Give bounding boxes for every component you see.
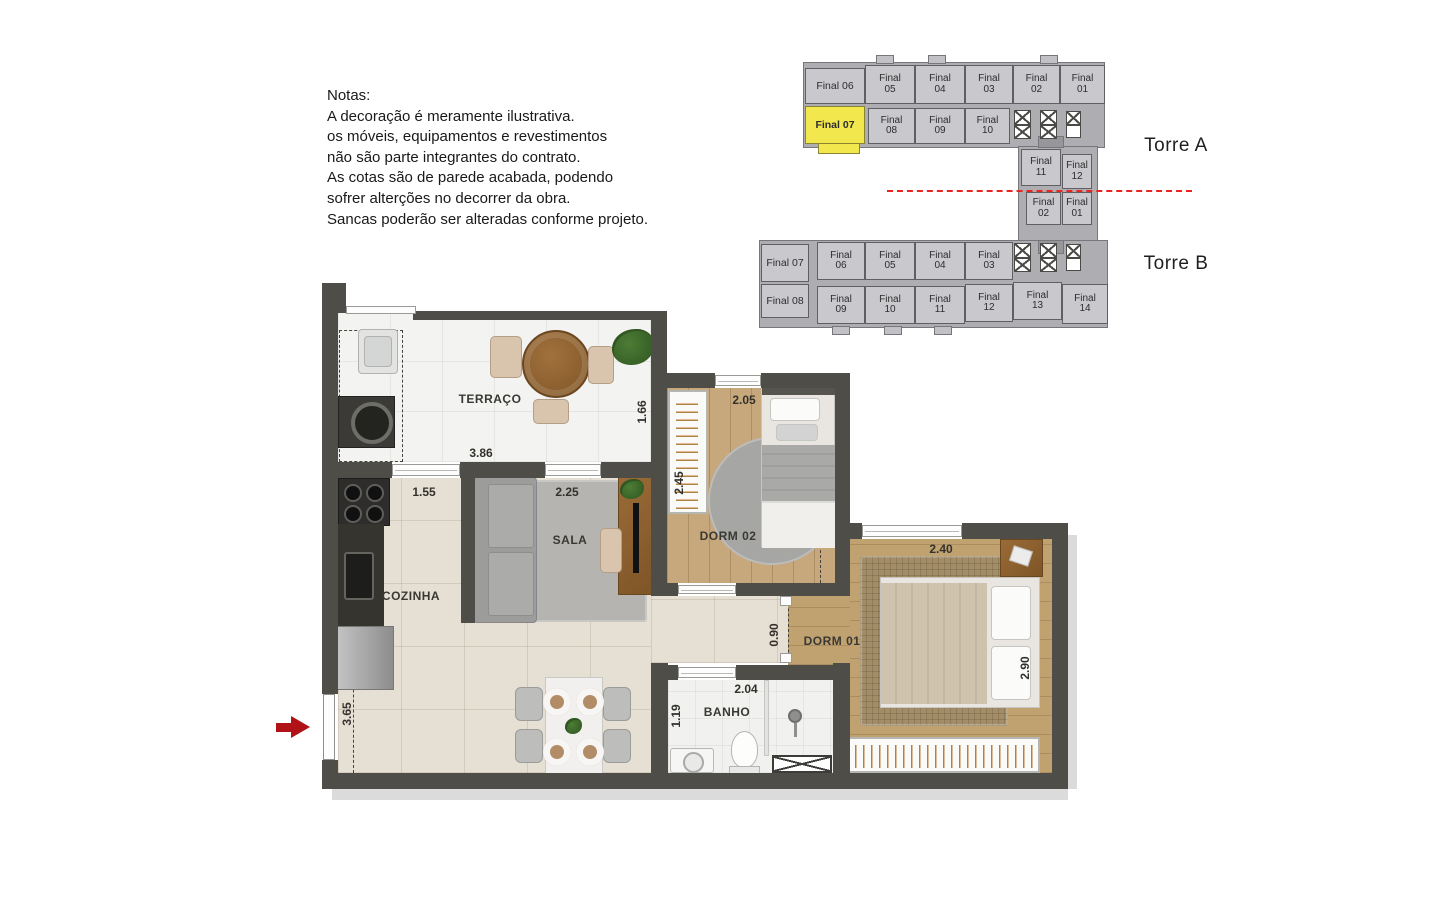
dining-chair [603,687,631,721]
toilet [731,731,758,768]
dimension-label: 2.40 [929,542,952,556]
sofa-cushion [488,484,534,548]
dimension-label: 1.55 [412,485,435,499]
plan-shadow [1068,535,1077,789]
floorplan-page: Notas:A decoração é meramente ilustrativ… [0,0,1440,900]
dining-chair [603,729,631,763]
dorm02-wardrobe [668,390,708,514]
wall [338,462,392,478]
room-label: BANHO [704,705,751,719]
entrance-arrow [276,716,310,739]
shaft-x-cell [1040,258,1057,273]
floor-dorm01-entry [788,596,850,665]
keyplan-unit: Final 09 [915,108,965,144]
place-setting [543,688,571,716]
keyplan-unit: Final 12 [1062,154,1092,189]
dimension-label: 2.04 [734,682,757,696]
room-label: DORM 02 [700,529,757,543]
sliding-door [392,464,460,476]
stove-burner [366,484,384,502]
wall [651,583,678,596]
notes-line: A decoração é meramente ilustrativa. [327,107,667,128]
keyplan-unit: Final 01 [1062,192,1092,225]
washing-machine [338,396,395,448]
dorm01-wardrobe [847,737,1040,773]
keyplan-tab [1040,55,1058,64]
bed-duvet [881,583,987,704]
wall [651,373,715,388]
wall [651,665,678,680]
notes-block: Notas:A decoração é meramente ilustrativ… [327,86,667,230]
bathroom-vanity [670,748,714,773]
dimension-label: 3.65 [340,702,354,725]
keyplan-unit: Final 11 [915,286,965,324]
dining-chair [515,729,543,763]
washer-drum [351,402,393,444]
double-bed [880,577,1040,708]
notes-line: os móveis, equipamentos e revestimentos [327,127,667,148]
wall [736,665,833,680]
shaft-x-cell [1014,258,1031,273]
keyplan-unit: Final 09 [817,286,865,324]
sofa-cushion [488,552,534,616]
elevator-shaft-icon [1014,243,1031,272]
terrace-stool [533,399,569,424]
shaft-x-cell [1066,125,1081,139]
keyplan-unit: Final 12 [965,284,1013,322]
door-jamb [780,596,792,606]
keyplan-unit: Final 14 [1062,284,1108,324]
entrance-door [323,694,335,760]
shaft-icon [772,755,832,773]
wall [835,373,850,585]
terrace-chair [588,346,614,384]
wall [460,462,545,478]
terrace-chair [490,336,522,378]
bed-pillow [991,586,1031,640]
dimension-label: 0.90 [767,623,781,646]
shower-head [788,709,802,723]
keyplan-tab [832,326,850,335]
plan-shadow [332,789,1068,800]
stove [338,478,390,526]
keyplan-tab [884,326,902,335]
notes-line: não são parte integrantes do contrato. [327,148,667,169]
room-label: COZINHA [382,589,440,603]
wall [651,311,667,585]
keyplan-unit: Final 04 [915,242,965,280]
bed-pillow [770,398,820,421]
shaft-x-cell [1040,110,1057,125]
sofa [473,477,537,623]
dining-chair [515,687,543,721]
keyplan-unit-highlighted: Final 07 [805,106,865,144]
dimension-label: 3.86 [469,446,492,460]
shaft-x-cell [1066,244,1081,258]
window [862,525,962,537]
door-dorm02 [678,585,736,594]
keyplan-unit: Final 03 [965,65,1013,104]
notes-line: As cotas são de parede acabada, podendo [327,168,667,189]
keyplan-unit: Final 06 [805,68,865,104]
elevator-shaft-icon [1014,110,1031,139]
fridge [337,626,394,690]
keyplan-unit: Final 08 [761,284,809,318]
door-banho [678,667,736,678]
nightstand-book [1009,545,1033,566]
notes-line: Sancas poderão ser alteradas conforme pr… [327,210,667,231]
keyplan-unit: Final 11 [1021,149,1061,186]
wall [322,285,338,694]
tv [633,503,639,573]
shaft-x-cell [1014,125,1031,140]
bathroom-basin [683,752,704,773]
keyplan-unit: Final 03 [965,242,1013,280]
elevator-shaft-icon [1066,244,1081,271]
shower-divider [764,680,769,756]
place-setting [576,688,604,716]
door-jamb [780,653,792,663]
room-label: TERRAÇO [459,392,522,406]
terrace-railing [413,311,653,320]
dimension-label: 1.19 [669,704,683,727]
notes-line: Notas: [327,86,667,107]
keyplan-unit: Final 06 [817,242,865,280]
shaft-x-cell [1040,243,1057,258]
wardrobe-hangers [855,745,1036,768]
dimension-label: 2.05 [732,393,755,407]
dimension-label: 1.66 [635,400,649,423]
keyplan-unit: Final 07 [761,244,809,282]
armchair [600,528,622,573]
keyplan-tab [928,55,946,64]
single-bed [761,384,835,547]
shaft-x-cell [1066,111,1081,125]
place-setting [576,738,604,766]
shower-stem [794,723,797,737]
shaft-x-cell [1014,110,1031,125]
room-label: DORM 01 [804,634,861,648]
window [715,375,761,386]
terrace-table [522,330,590,398]
keyplan-unit: Final 05 [865,242,915,280]
sliding-door [545,464,601,476]
bed-blanket [762,445,836,501]
keyplan-unit: Final 05 [865,65,915,104]
stove-burner [366,505,384,523]
wall [833,663,850,773]
shaft-x-cell [1014,243,1031,258]
notes-line: sofrer alterções no decorrer da obra. [327,189,667,210]
shaft-x-cell [1066,258,1081,272]
stove-burner [344,484,362,502]
entrance-arrow-shaft [276,723,292,732]
entrance-arrow-head [291,716,310,738]
wall [322,773,1068,789]
dimension-label: 2.45 [672,471,686,494]
parapet-sill [346,306,416,314]
dimension-label: 2.25 [555,485,578,499]
wall [736,583,850,596]
place-setting [543,738,571,766]
room-label: SALA [553,533,588,547]
kitchen-sink [344,552,374,600]
elevator-shaft-icon [1066,111,1081,138]
keyplan-unit: Final 10 [865,286,915,324]
keyplan-unit: Final 08 [868,108,915,144]
dimension-label: 2.90 [1018,656,1032,679]
keyplan-unit: Final 02 [1026,192,1061,225]
keyplan-unit: Final 01 [1060,65,1105,104]
wall [601,462,653,478]
wall [461,478,475,623]
elevator-shaft-icon [1040,110,1057,139]
keyplan-unit: Final 10 [965,108,1010,144]
shaft-x-cell [1040,125,1057,140]
elevator-shaft-icon [1040,243,1057,272]
keyplan-unit: Final 13 [1013,282,1062,320]
torre-b-label: Torre B [1144,253,1209,275]
wall [1052,523,1068,789]
nightstand [1000,539,1043,577]
keyplan-unit: Final 04 [915,65,965,104]
stove-burner [344,505,362,523]
keyplan-unit-highlighted-tab [818,143,860,154]
keyplan-unit: Final 02 [1013,65,1060,104]
keyplan-tab [934,326,952,335]
bed-pillow [776,424,818,441]
keyplan-tab [876,55,894,64]
bed-duvet [762,501,836,548]
torre-a-label: Torre A [1144,135,1208,157]
laundry-sink [358,329,398,374]
wall [843,523,862,539]
